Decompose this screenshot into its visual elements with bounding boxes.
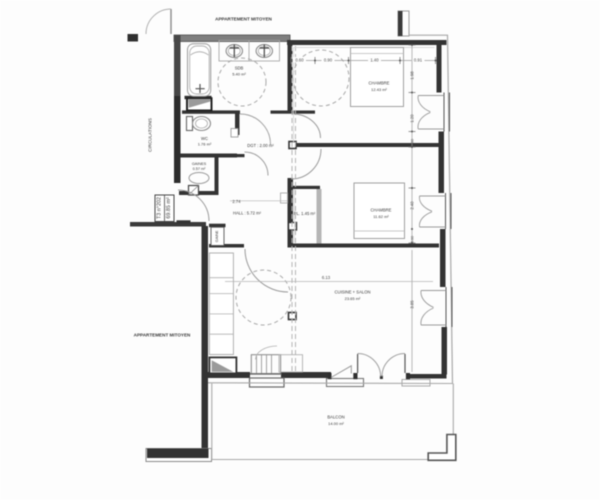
svg-text:CUISINE + SALON: CUISINE + SALON — [335, 290, 371, 295]
svg-text:PL. 1.45 m²: PL. 1.45 m² — [294, 211, 316, 216]
svg-text:14.00 m²: 14.00 m² — [328, 421, 344, 426]
svg-text:11.62 m²: 11.62 m² — [373, 214, 389, 219]
svg-text:2.74: 2.74 — [232, 199, 241, 204]
svg-text:2.40: 2.40 — [410, 201, 415, 210]
svg-text:1.98: 1.98 — [410, 71, 415, 80]
svg-text:WC: WC — [201, 136, 208, 141]
svg-text:0.90: 0.90 — [324, 58, 333, 63]
svg-text:GAINE: GAINE — [215, 230, 219, 242]
svg-text:1.76 m²: 1.76 m² — [198, 142, 212, 147]
svg-text:CIRCULATIONS: CIRCULATIONS — [148, 118, 153, 152]
svg-text:T3 n°202: T3 n°202 — [157, 197, 163, 219]
svg-text:5.40 m²: 5.40 m² — [232, 72, 246, 77]
svg-text:0.60: 0.60 — [411, 236, 415, 243]
svg-text:APPARTEMENT MITOYEN: APPARTEMENT MITOYEN — [134, 333, 191, 338]
svg-text:HALL : 5.72 m²: HALL : 5.72 m² — [233, 211, 262, 216]
svg-text:1.40: 1.40 — [370, 58, 379, 63]
svg-text:69.85 m²: 69.85 m² — [166, 197, 172, 218]
svg-text:CHAMBRE: CHAMBRE — [371, 208, 392, 213]
svg-text:SDB: SDB — [235, 66, 244, 71]
svg-text:3.85: 3.85 — [410, 300, 415, 309]
svg-text:0.57 m²: 0.57 m² — [193, 167, 207, 171]
svg-text:BALCON: BALCON — [327, 415, 344, 420]
svg-text:APPARTEMENT MITOYEN: APPARTEMENT MITOYEN — [215, 17, 272, 22]
svg-text:0.91: 0.91 — [414, 58, 423, 63]
svg-text:0.60: 0.60 — [411, 139, 415, 146]
svg-text:DGT : 2.00 m²: DGT : 2.00 m² — [247, 143, 274, 148]
svg-text:6.13: 6.13 — [322, 275, 331, 280]
svg-text:12.43 m²: 12.43 m² — [371, 87, 387, 92]
svg-text:GAINES: GAINES — [192, 162, 207, 166]
svg-text:CHAMBRE: CHAMBRE — [369, 81, 390, 86]
svg-text:23.65 m²: 23.65 m² — [345, 296, 361, 301]
svg-text:0.60: 0.60 — [295, 58, 304, 63]
svg-text:1.20: 1.20 — [410, 114, 415, 123]
